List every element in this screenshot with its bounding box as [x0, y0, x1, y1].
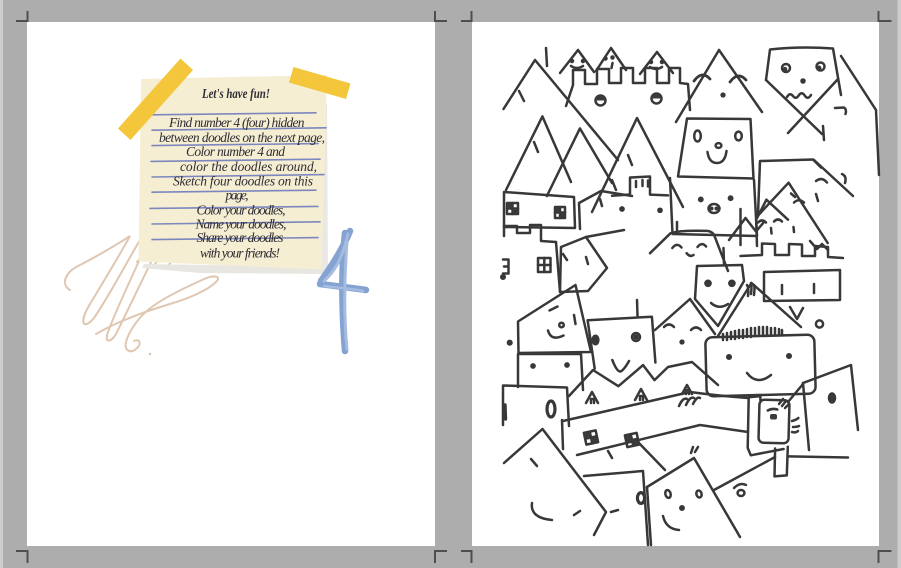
svg-text:Let's have fun!: Let's have fun!: [201, 87, 270, 102]
svg-text:with your friends!: with your friends!: [200, 246, 280, 261]
svg-text:page,: page,: [225, 188, 249, 203]
svg-text:between doodles on the next pa: between doodles on the next page,: [159, 130, 325, 145]
svg-text:color the doodles around,: color the doodles around,: [180, 159, 317, 174]
svg-text:Sketch four doodles on this: Sketch four doodles on this: [173, 174, 313, 189]
svg-text:Color number 4 and: Color number 4 and: [186, 144, 285, 159]
svg-text:Share your doodles: Share your doodles: [197, 230, 284, 245]
svg-text:Find number 4 (four) hidden: Find number 4 (four) hidden: [168, 115, 305, 130]
svg-text:Color your doodles,: Color your doodles,: [197, 203, 286, 218]
